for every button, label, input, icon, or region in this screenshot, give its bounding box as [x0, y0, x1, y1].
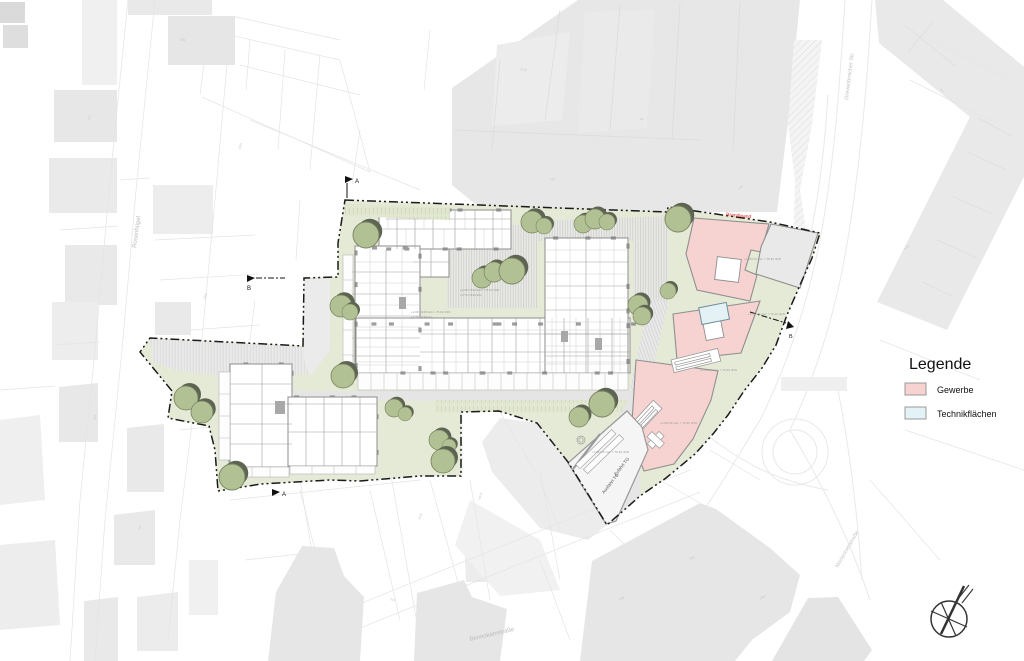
svg-text:B: B [789, 334, 793, 340]
svg-text:A: A [355, 179, 359, 185]
svg-text:A: A [282, 492, 286, 498]
svg-text:Legende: Legende [909, 356, 971, 373]
svg-text:+0.76 OKFF EG: +0.76 OKFF EG [411, 315, 433, 319]
svg-text:+0.76 OKFF EG: +0.76 OKFF EG [460, 293, 482, 297]
svg-text:+1.80 OK Gel. = 76.40 üNN: +1.80 OK Gel. = 76.40 üNN [744, 257, 781, 261]
svg-text:+2.27 OK Gel. = 76.40 üNN: +2.27 OK Gel. = 76.40 üNN [748, 312, 785, 316]
svg-text:+2.08 OKFF EG = 76.62 üNN: +2.08 OKFF EG = 76.62 üNN [411, 310, 450, 314]
svg-text:292: 292 [550, 177, 556, 182]
svg-text:+2.58 OK Gel. = 76.40 üNN: +2.58 OK Gel. = 76.40 üNN [592, 450, 629, 454]
svg-text:Gewerbe: Gewerbe [937, 385, 974, 395]
svg-text:+2.89 OK Gel. = 76.40 üNN: +2.89 OK Gel. = 76.40 üNN [660, 421, 697, 425]
svg-text:+2.08 OKFF EG = 76.62 üNN: +2.08 OKFF EG = 76.62 üNN [460, 288, 499, 292]
svg-text:B: B [247, 286, 251, 292]
svg-text:Technikflächen: Technikflächen [937, 409, 997, 419]
svg-text:+2.40 OK Gel. = 76.40 üNN: +2.40 OK Gel. = 76.40 üNN [700, 368, 737, 372]
